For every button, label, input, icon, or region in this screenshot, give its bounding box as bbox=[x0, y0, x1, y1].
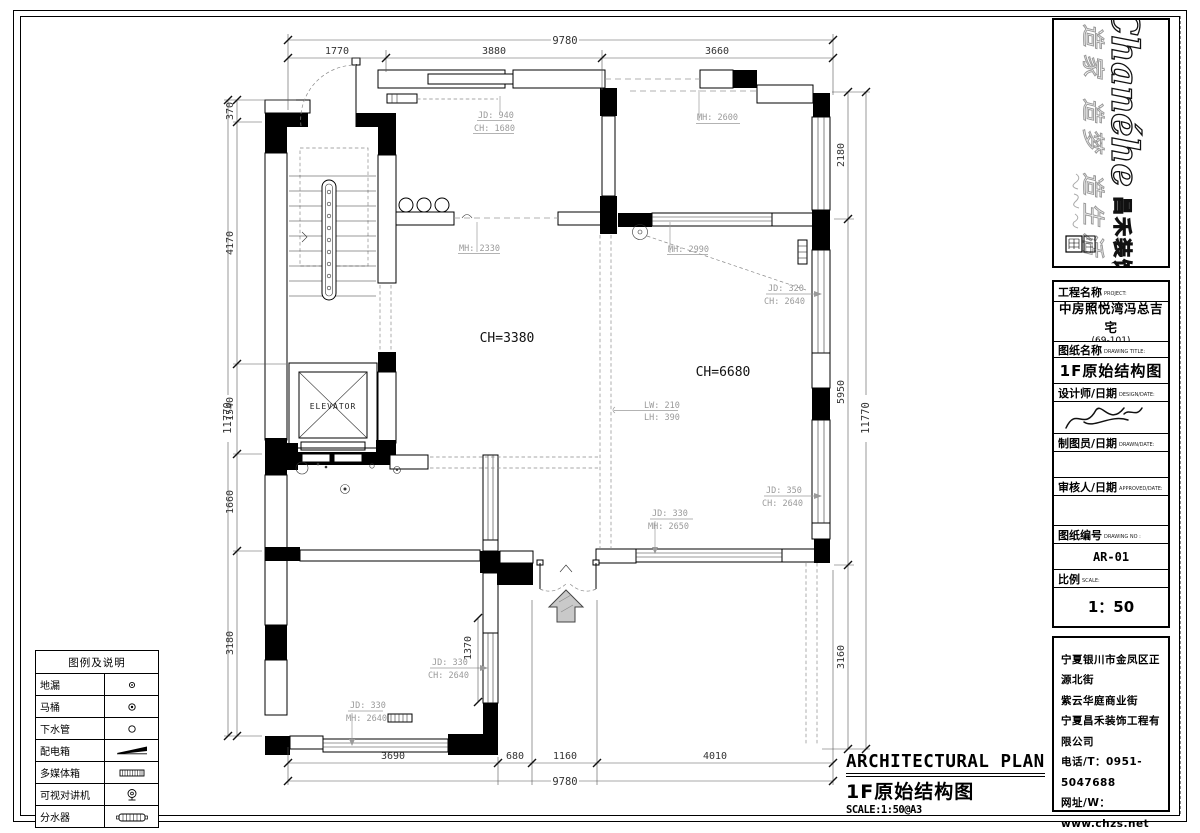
dim-right-2: 3160 bbox=[836, 645, 847, 669]
drawing-sheet: ELEVATOR bbox=[0, 0, 1200, 833]
plan-symbols bbox=[296, 94, 807, 722]
dim-1370: 1370 bbox=[463, 636, 474, 660]
scale-value-row: 1：50 bbox=[1054, 588, 1168, 624]
legend-row: 配电箱 bbox=[36, 740, 158, 762]
dim-bottom-total: 9780 bbox=[552, 776, 577, 788]
scale-label: 比例 bbox=[1058, 571, 1080, 587]
elevator-label: ELEVATOR bbox=[310, 402, 357, 411]
drafter-label-row: 制图员/日期 DRAWN/DATE: bbox=[1054, 434, 1168, 452]
caption-title-en: ARCHITECTURAL PLAN bbox=[846, 752, 1045, 777]
brand-name-cn: 昌禾装饰 bbox=[1111, 196, 1133, 268]
dim-bottom-2: 1160 bbox=[553, 751, 577, 762]
legend-row: 马桶 bbox=[36, 696, 158, 718]
company-address-2: 紫云华庭商业街 bbox=[1061, 691, 1161, 711]
legend-title: 图例及说明 bbox=[36, 651, 158, 674]
multimedia-box-icon bbox=[105, 762, 158, 783]
calligraphy-seal-icon bbox=[1062, 170, 1098, 262]
dim-left-total: 11770 bbox=[222, 402, 234, 434]
legend-label: 可视对讲机 bbox=[36, 784, 105, 805]
designer-label-row: 设计师/日期 DESIGN/DATE: bbox=[1054, 384, 1168, 402]
drawing-no-label-row: 图纸编号 DRAWING NO : bbox=[1054, 526, 1168, 544]
label-mh2600: MH: 2600 bbox=[697, 113, 738, 123]
label-mh2650: MH: 2650 bbox=[648, 522, 689, 532]
drawing-title: 1F原始结构图 bbox=[1060, 360, 1163, 381]
drawing-title-row: 1F原始结构图 bbox=[1054, 358, 1168, 384]
dim-right-total: 11770 bbox=[860, 402, 872, 434]
label-jd330-a: JD: 330 bbox=[652, 509, 688, 519]
drawing-number: AR-01 bbox=[1093, 550, 1129, 564]
legend-label: 分水器 bbox=[36, 806, 105, 827]
project-label-row: 工程名称 PROJECT: bbox=[1054, 282, 1168, 302]
label-jd940: JD: 940 bbox=[478, 111, 514, 121]
signature-icon bbox=[1054, 402, 1154, 434]
drawing-title-label-row: 图纸名称 DRAWING TITLE: bbox=[1054, 342, 1168, 358]
dim-bottom-3: 4010 bbox=[703, 751, 727, 762]
label-jd330-c: JD: 330 bbox=[350, 701, 386, 711]
entry-door-bottom bbox=[537, 560, 599, 622]
brand-line: Chanéhe昌禾装饰 bbox=[1106, 18, 1143, 268]
water-manifold-icon bbox=[105, 806, 158, 827]
brand-logo: Chanéhe bbox=[1103, 18, 1147, 187]
elevator: ELEVATOR bbox=[289, 363, 377, 462]
company-block: 宁夏银川市金凤区正源北街 紫云华庭商业街 宁夏昌禾装饰工程有限公司 电话/T：0… bbox=[1052, 636, 1170, 812]
approver-label-en: APPROVED/DATE: bbox=[1119, 486, 1163, 492]
designer-label-en: DESIGN/DATE: bbox=[1119, 392, 1155, 398]
legend-row: 地漏 bbox=[36, 674, 158, 696]
legend-label: 地漏 bbox=[36, 674, 105, 695]
caption-scale: SCALE:1:50@A3 bbox=[846, 804, 922, 816]
legend-table: 图例及说明 地漏 马桶 下水管 配电箱 多媒体箱 bbox=[35, 650, 159, 828]
label-mh2330: MH: 2330 bbox=[459, 244, 500, 254]
label-mh2990: MH: 2990 bbox=[668, 245, 709, 255]
dim-left-1: 4170 bbox=[225, 231, 236, 255]
video-intercom-icon bbox=[105, 784, 158, 805]
dim-top-1: 3880 bbox=[482, 46, 506, 57]
drawing-no-label: 图纸编号 bbox=[1058, 527, 1102, 543]
company-address-1: 宁夏银川市金凤区正源北街 bbox=[1061, 650, 1161, 691]
dim-bottom-1: 680 bbox=[506, 751, 524, 762]
fold-dashed-line bbox=[1180, 16, 1181, 814]
drawing-no-label-en: DRAWING NO : bbox=[1104, 534, 1141, 540]
company-phone: 电话/T：0951-5047688 bbox=[1061, 752, 1161, 793]
dim-left-0: 370 bbox=[225, 102, 236, 120]
legend-label: 马桶 bbox=[36, 696, 105, 717]
label-ch6680: CH=6680 bbox=[696, 365, 751, 380]
label-ch3380: CH=3380 bbox=[480, 331, 535, 346]
project-label: 工程名称 bbox=[1058, 284, 1102, 300]
approver-label-row: 审核人/日期 APPROVED/DATE: bbox=[1054, 478, 1168, 496]
company-website: 网址/W：www.chzs.net bbox=[1061, 793, 1161, 833]
drafter-label: 制图员/日期 bbox=[1058, 435, 1117, 451]
approver-empty-cell bbox=[1054, 496, 1168, 526]
approver-label: 审核人/日期 bbox=[1058, 479, 1117, 495]
label-lh390: LH: 390 bbox=[644, 413, 680, 423]
caption-title-cn: 1F原始结构图 bbox=[846, 781, 974, 803]
walls-black bbox=[265, 70, 830, 755]
scale-value: 1：50 bbox=[1088, 596, 1134, 617]
drawing-title-label-en: DRAWING TITLE: bbox=[1104, 349, 1145, 355]
room-annotations: JD: 940 CH: 1680 MH: 2600 MH: 2330 MH: 2… bbox=[346, 90, 822, 746]
drafter-empty-cell bbox=[1054, 452, 1168, 478]
dim-left-3: 1660 bbox=[225, 490, 236, 514]
dim-right-0: 2180 bbox=[836, 143, 847, 167]
legend-label: 下水管 bbox=[36, 718, 105, 739]
dim-bottom-0: 3690 bbox=[381, 751, 405, 762]
project-value-row: 中房照悦湾冯总吉宅 (69-101) bbox=[1054, 302, 1168, 342]
legend-label: 多媒体箱 bbox=[36, 762, 105, 783]
company-name: 宁夏昌禾装饰工程有限公司 bbox=[1061, 711, 1161, 752]
floor-drain-icon bbox=[105, 674, 158, 695]
label-ch2640-c: CH: 2640 bbox=[428, 671, 469, 681]
drawing-title-label: 图纸名称 bbox=[1058, 342, 1102, 358]
distribution-box-icon bbox=[105, 740, 158, 761]
toilet-icon bbox=[105, 696, 158, 717]
project-name: 中房照悦湾冯总吉宅 bbox=[1054, 302, 1168, 336]
label-ch2640-b: CH: 2640 bbox=[762, 499, 803, 509]
legend-row: 多媒体箱 bbox=[36, 762, 158, 784]
dim-right-1: 5950 bbox=[836, 380, 847, 404]
logo-box: Chanéhe昌禾装饰 造家 造梦 造生活 bbox=[1052, 18, 1170, 268]
drafter-label-en: DRAWN/DATE: bbox=[1119, 442, 1154, 448]
drawing-no-row: AR-01 bbox=[1054, 544, 1168, 570]
label-ch1680: CH: 1680 bbox=[474, 124, 515, 134]
stairs bbox=[289, 176, 376, 300]
label-jd320: JD: 320 bbox=[768, 284, 804, 294]
legend-row: 分水器 bbox=[36, 806, 158, 827]
title-block: 工程名称 PROJECT: 中房照悦湾冯总吉宅 (69-101) 图纸名称 DR… bbox=[1052, 280, 1170, 628]
legend-label: 配电箱 bbox=[36, 740, 105, 761]
plan-caption: ARCHITECTURAL PLAN 1F原始结构图SCALE:1:50@A3 bbox=[846, 752, 1046, 825]
floor-plan-svg: ELEVATOR bbox=[200, 15, 1060, 815]
designer-label: 设计师/日期 bbox=[1058, 385, 1117, 401]
legend-row: 下水管 bbox=[36, 718, 158, 740]
dim-top-total: 9780 bbox=[552, 35, 577, 47]
dim-top-2: 3660 bbox=[705, 46, 729, 57]
drain-pipe-icon bbox=[105, 718, 158, 739]
designer-signature-cell bbox=[1054, 402, 1168, 434]
label-jd350: JD: 350 bbox=[766, 486, 802, 496]
scale-label-row: 比例 SCALE: bbox=[1054, 570, 1168, 588]
label-ch2640-a: CH: 2640 bbox=[764, 297, 805, 307]
legend-row: 可视对讲机 bbox=[36, 784, 158, 806]
project-label-en: PROJECT: bbox=[1104, 291, 1127, 297]
entry-door-top bbox=[301, 58, 360, 127]
dim-top-0: 1770 bbox=[325, 46, 349, 57]
scale-label-en: SCALE: bbox=[1082, 578, 1100, 584]
label-lw210: LW: 210 bbox=[644, 401, 680, 411]
dim-left-4: 3180 bbox=[225, 631, 236, 655]
